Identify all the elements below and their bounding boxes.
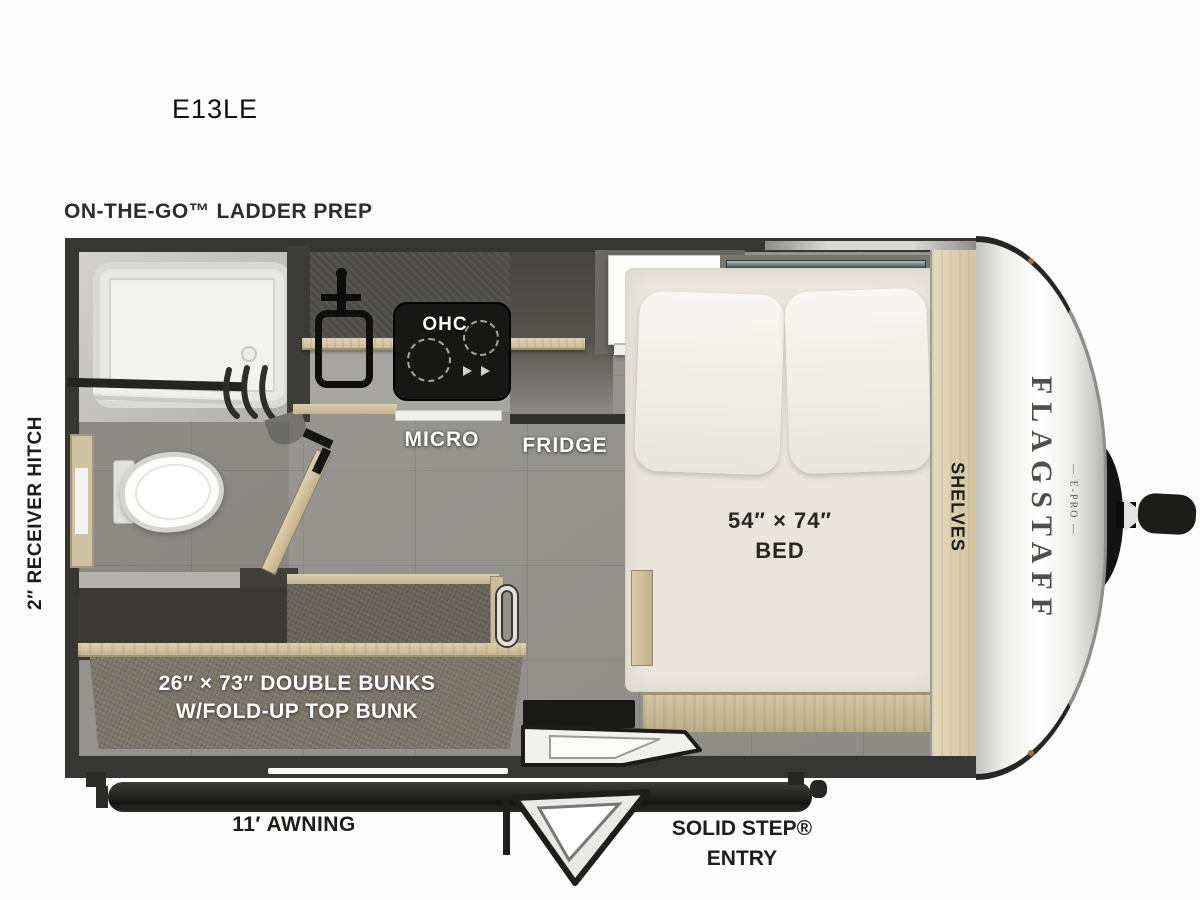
pillow xyxy=(784,288,932,475)
counter-wood-edge xyxy=(293,404,397,414)
faucet-knob xyxy=(336,268,347,279)
awning-end-cap xyxy=(810,780,827,798)
entry-step-plate xyxy=(520,724,705,768)
bathroom-partition-wall xyxy=(287,246,310,422)
bed-size-label: 54″ × 74″ xyxy=(695,506,865,536)
bunks-label: 26″ × 73″ DOUBLE BUNKS W/FOLD-UP TOP BUN… xyxy=(122,670,472,726)
bunks-size-label: 26″ × 73″ DOUBLE BUNKS xyxy=(122,670,472,698)
brand-logo: FLAGSTAFF xyxy=(1024,376,1058,624)
awning-bracket xyxy=(96,786,108,808)
grab-handle-icon xyxy=(497,586,517,646)
cooktop-knob-icon xyxy=(481,366,490,376)
bunk-wood-rail xyxy=(78,643,526,657)
bathroom-window xyxy=(70,434,94,568)
fridge-front-edge xyxy=(510,414,628,424)
bed-label: 54″ × 74″ BED xyxy=(695,506,865,566)
fridge-label: FRIDGE xyxy=(485,434,645,458)
top-bunk xyxy=(287,584,497,644)
awning-label: 11′ AWNING xyxy=(184,813,404,837)
floorplan-image: E13LE ON-THE-GO™ LADDER PREP 2″ RECEIVER… xyxy=(0,0,1200,900)
faucet-bar xyxy=(321,294,361,301)
top-bunk-wood-rail xyxy=(287,574,499,584)
cooktop-knob-icon xyxy=(463,366,472,376)
awning-bracket xyxy=(86,772,106,787)
brand-series: — E-PRO — xyxy=(1068,464,1079,536)
solid-step-line2: ENTRY xyxy=(637,844,847,874)
top-wall-window xyxy=(765,241,977,250)
nightstand xyxy=(631,570,653,666)
sink-icon xyxy=(315,310,373,388)
cap-rivet xyxy=(1028,258,1034,264)
solid-step-label: SOLID STEP® ENTRY xyxy=(637,814,847,874)
awning-rail xyxy=(108,782,812,812)
pillow xyxy=(634,291,785,476)
burner-icon xyxy=(407,338,451,382)
ladder-prep-label: ON-THE-GO™ LADDER PREP xyxy=(64,200,373,224)
awning-bracket xyxy=(788,772,804,785)
shelves-label: SHELVES xyxy=(947,462,968,552)
bed-text-label: BED xyxy=(695,536,865,566)
shower-drain-icon xyxy=(241,346,257,362)
microwave-front xyxy=(395,410,502,421)
solid-step-line1: SOLID STEP® xyxy=(637,814,847,844)
trailer-body: OHC MICRO FRIDGE A/C 54″ × 74″ BED xyxy=(65,238,985,778)
receiver-hitch-label: 2″ RECEIVER HITCH xyxy=(25,416,47,610)
bunks-note-label: W/FOLD-UP TOP BUNK xyxy=(122,698,472,726)
page-title: E13LE xyxy=(172,94,258,125)
body-trim xyxy=(268,768,508,774)
cap-rivet xyxy=(1028,750,1034,756)
ohc-label: OHC xyxy=(390,314,500,336)
